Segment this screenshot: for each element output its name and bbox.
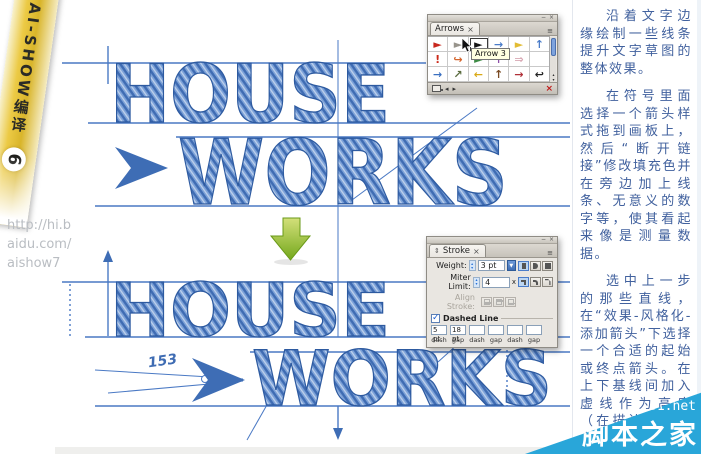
symbol-cell[interactable]: → [509,67,529,82]
delete-symbol-button[interactable]: × [545,84,553,94]
dash-gap-labels: dashgapdashgapdashgap [427,335,557,347]
panel-menu-icon[interactable]: ≡ [547,27,555,35]
symbol-cell[interactable]: ► [509,37,529,52]
arrow-symbol-icon: ↑ [494,69,503,80]
collapse-icon[interactable]: ⇕ [434,247,440,255]
stepper-down-icon[interactable]: ▾ [475,282,477,286]
cap-round-button[interactable] [530,261,541,271]
panel-menu-icon[interactable]: ≡ [547,249,555,257]
dart-arrow-top [115,147,168,189]
dash-gap-fields: 5 pt18 pt [427,323,557,335]
tooltip-arrow3: Arrow 3 [471,48,510,60]
arrow-symbol-icon: ← [474,69,483,80]
align-center-button[interactable] [481,297,492,307]
arrow-symbol-icon: → [433,69,442,80]
sketch-word-works-top: WORKS [178,121,508,226]
stepper-down-icon[interactable]: ▾ [471,266,473,270]
dash-gap-label: dash [507,336,523,344]
dash-gap-field[interactable]: 18 pt [450,325,466,335]
miter-stepper[interactable]: ▴ ▾ [473,277,480,288]
join-miter-button[interactable] [518,277,529,287]
weight-stepper[interactable]: ▴ ▾ [469,260,476,271]
dart-arrow-bottom [192,358,245,402]
dash-gap-label: gap [526,336,542,344]
join-buttons [518,277,553,287]
weight-dropdown-button[interactable]: ▼ [507,260,516,271]
symbol-cell[interactable]: ↑ [530,37,550,52]
measure-number-153: 153 [147,351,178,371]
canvas-bottom-edge [55,447,570,454]
miter-limit-field[interactable]: 4 [482,277,510,288]
dash-gap-field[interactable] [488,325,504,335]
tab-close-icon[interactable]: × [467,25,474,34]
dash-gap-field[interactable] [526,325,542,335]
symbol-cell[interactable] [530,52,550,67]
arrow-symbol-icon: → [514,69,523,80]
tutorial-paragraph: 沿着文字边缘绘制一些线条提升文字草图的整体效果。 [580,8,692,78]
symbol-cell[interactable]: → [428,67,448,82]
minimize-icon[interactable]: − [541,15,546,21]
join-bevel-button[interactable] [542,277,553,287]
scrollbar-thumb[interactable] [551,38,556,56]
symbol-cell[interactable]: ↑ [489,67,509,82]
join-round-button[interactable] [530,277,541,287]
divider [501,318,553,319]
arrow-symbol-icon: ! [435,54,440,65]
arrow-symbol-icon: ► [433,39,441,50]
align-outside-button[interactable] [505,297,516,307]
cap-buttons [518,261,553,271]
tab-label: Arrows [435,24,464,34]
dash-gap-label: dash [469,336,485,344]
author-url: http://hi.b aidu.com/ aishow7 [7,216,73,273]
arrow-symbol-icon: ↪ [453,54,462,65]
mouse-cursor-icon [461,38,473,53]
dash-gap-field[interactable]: 5 pt [431,325,447,335]
cap-projecting-button[interactable] [542,261,553,271]
panel-titlebar: − × [427,237,557,244]
miter-x-label: x [512,278,516,286]
align-stroke-row: Align Stroke: [427,291,557,311]
symbol-cell[interactable]: ↩ [530,67,550,82]
tab-arrows[interactable]: Arrows × [430,22,480,35]
arrow-symbol-icon: ► [515,39,523,50]
weight-field[interactable]: 3 pt [478,260,505,271]
tutorial-screenshot: HOUSE WORKS [0,0,701,454]
tab-close-icon[interactable]: × [473,247,480,256]
tutorial-text-sidebar: 沿着文字边缘绘制一些线条提升文字草图的整体效果。在符号里面选择一个箭头样式拖到画… [572,0,701,454]
weight-row: Weight: ▴ ▾ 3 pt ▼ [427,258,557,271]
symbol-cell[interactable]: ↗ [448,67,468,82]
arrow-symbol-icon: ↗ [453,69,462,80]
cap-butt-button[interactable] [518,261,529,271]
symbol-cell[interactable]: ← [469,67,489,82]
ribbon-title: AI-SHOW编译 [7,1,46,136]
dash-gap-label: gap [450,336,466,344]
url-line: aishow7 [7,254,73,273]
panel-tabbar: Arrows × ≡ [428,22,557,36]
url-line: http://hi.b [7,216,73,235]
scroll-down-icon[interactable]: ▾ [550,77,557,82]
weight-label: Weight: [431,261,467,270]
panel-tabbar: ⇕ Stroke × ≡ [427,244,557,258]
align-stroke-buttons [481,297,516,307]
tutorial-paragraph: 在符号里面选择一个箭头样式拖到画板上，然后“断开链接”修改填充色并在旁边加上线条… [580,88,692,263]
dashed-line-label: Dashed Line [443,314,498,323]
next-symbol-button[interactable]: ▸ [453,84,457,94]
miter-row: Miter Limit: ▴ ▾ 4 x [427,271,557,291]
dashed-line-checkbox[interactable]: ✓ [431,314,440,323]
close-icon[interactable]: × [549,237,554,243]
arrow-symbol-icon: ⇒ [514,54,523,65]
arrow-symbol-icon: ↑ [535,39,544,50]
dash-gap-field[interactable] [507,325,523,335]
panel-titlebar: − × [428,15,557,22]
panel-bottombar: ◂ ▸ × [428,82,557,94]
symbol-cell[interactable]: ! [428,52,448,67]
tab-stroke[interactable]: ⇕ Stroke × [429,244,486,257]
scrollbar-buttons[interactable]: ▴ ▾ [550,72,557,82]
symbol-cell[interactable]: ↪ [448,52,468,67]
ribbon-issue-number: 6 [0,146,27,173]
minimize-icon[interactable]: − [541,237,546,243]
dash-gap-label: dash [431,336,447,344]
dash-gap-label: gap [488,336,504,344]
symbol-cell[interactable]: ► [428,37,448,52]
url-line: aidu.com/ [7,235,73,254]
close-icon[interactable]: × [549,15,554,21]
align-inside-button[interactable] [493,297,504,307]
dashed-line-row: ✓ Dashed Line [427,311,557,323]
miter-limit-label: Miter Limit: [431,273,471,291]
tab-label: Stroke [443,246,470,256]
dash-gap-field[interactable] [469,325,485,335]
scrollbar[interactable]: ▴ ▾ [549,37,556,82]
chevron-down-icon: ▼ [509,263,513,269]
prev-symbol-button[interactable]: ◂ [445,84,449,94]
align-stroke-label: Align Stroke: [431,293,475,311]
stroke-panel: − × ⇕ Stroke × ≡ Weight: ▴ ▾ 3 pt ▼ [426,236,558,348]
symbol-cell[interactable]: ⇒ [509,52,529,67]
symbol-options-icon[interactable] [432,85,441,92]
arrow-symbol-icon: ↩ [535,69,544,80]
